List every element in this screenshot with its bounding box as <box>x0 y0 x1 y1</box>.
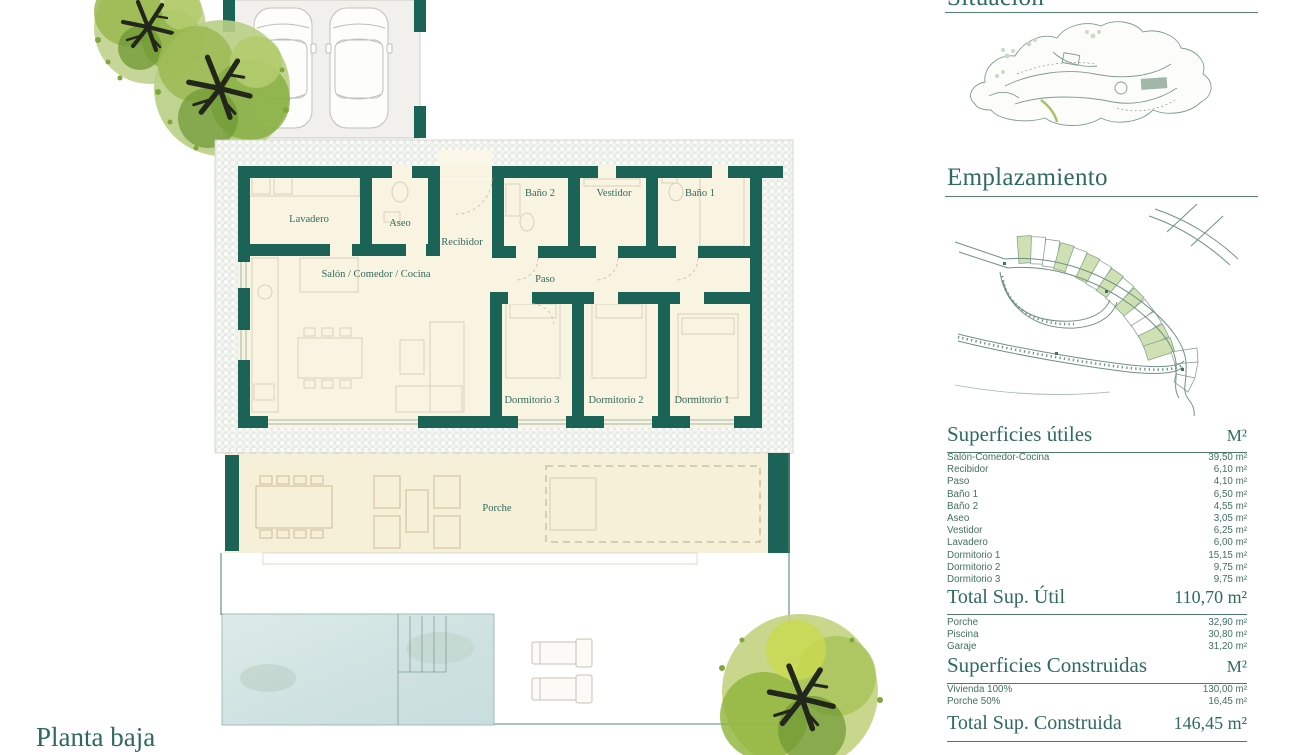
emplazamiento-title: Emplazamiento <box>947 164 1108 192</box>
superficies-utiles-unit: M² <box>1227 426 1247 446</box>
floorplan-sheet: Lavadero Aseo Recibidor Baño 2 Vestidor … <box>0 0 1290 755</box>
table-row: Dormitorio 39,75 m² <box>947 574 1247 586</box>
table-row: Vestidor6,25 m² <box>947 525 1247 537</box>
table-row: Paso4,10 m² <box>947 476 1247 488</box>
tree-bottomright <box>719 614 883 755</box>
car-outline <box>326 8 392 128</box>
info-panel: Situación <box>945 0 1261 755</box>
situacion-rule <box>945 12 1258 13</box>
room-label-vestidor: Vestidor <box>597 188 633 199</box>
plan-title: Planta baja <box>36 722 155 753</box>
table-row: Dormitorio 29,75 m² <box>947 562 1247 574</box>
total-sup-util: Total Sup. Útil 110,70 m² <box>947 586 1247 615</box>
sun-lounger <box>532 639 592 667</box>
table-row: Recibidor6,10 m² <box>947 464 1247 476</box>
construidas-rows: Vivienda 100%130,00 m² Porche 50%16,45 m… <box>947 684 1247 708</box>
superficies-construidas-unit: M² <box>1227 657 1247 677</box>
room-label-dormitorio1: Dormitorio 1 <box>674 395 729 406</box>
superficies-utiles-header: Superficies útiles M² <box>947 422 1247 453</box>
table-row: Baño 16,50 m² <box>947 489 1247 501</box>
total-sup-construida: Total Sup. Construida 146,45 m² <box>947 712 1247 742</box>
situacion-map <box>945 16 1260 162</box>
room-label-bano2: Baño 2 <box>525 188 555 199</box>
porch: Porche <box>225 453 790 553</box>
superficies-construidas-title: Superficies Construidas <box>947 653 1147 678</box>
porch-step <box>263 553 697 564</box>
room-label-lavadero: Lavadero <box>289 214 329 225</box>
table-row: Porche 50%16,45 m² <box>947 696 1247 708</box>
room-label-bano1: Baño 1 <box>685 188 715 199</box>
table-row: Garaje31,20 m² <box>947 641 1247 653</box>
room-label-dormitorio2: Dormitorio 2 <box>588 395 643 406</box>
superficies-utiles-rows: Salón-Comedor-Cocina39,50 m² Recibidor6,… <box>947 452 1247 586</box>
situacion-title: Situación <box>947 0 1044 12</box>
emplazamiento-map <box>945 202 1260 420</box>
room-label-recibidor: Recibidor <box>441 237 483 248</box>
table-row: Baño 24,55 m² <box>947 501 1247 513</box>
extras-rows: Porche32,90 m² Piscina30,80 m² Garaje31,… <box>947 617 1247 654</box>
emplazamiento-rule <box>945 196 1258 197</box>
table-row: Porche32,90 m² <box>947 617 1247 629</box>
table-row: Salón-Comedor-Cocina39,50 m² <box>947 452 1247 464</box>
superficies-construidas-header: Superficies Construidas M² <box>947 653 1247 684</box>
site-plan-drawing: Lavadero Aseo Recibidor Baño 2 Vestidor … <box>0 0 945 755</box>
tree-topleft-2 <box>154 20 290 156</box>
room-label-dormitorio3: Dormitorio 3 <box>504 395 559 406</box>
room-label-porche: Porche <box>482 503 511 514</box>
table-row: Dormitorio 115,15 m² <box>947 550 1247 562</box>
table-row: Piscina30,80 m² <box>947 629 1247 641</box>
room-label-aseo: Aseo <box>389 218 411 229</box>
sun-lounger <box>532 675 592 703</box>
superficies-utiles-title: Superficies útiles <box>947 422 1092 447</box>
table-row: Vivienda 100%130,00 m² <box>947 684 1247 696</box>
table-row: Aseo3,05 m² <box>947 513 1247 525</box>
room-label-paso: Paso <box>535 274 555 285</box>
table-row: Lavadero6,00 m² <box>947 537 1247 549</box>
room-label-salon: Salón / Comedor / Cocina <box>321 269 430 280</box>
pool <box>222 614 494 725</box>
